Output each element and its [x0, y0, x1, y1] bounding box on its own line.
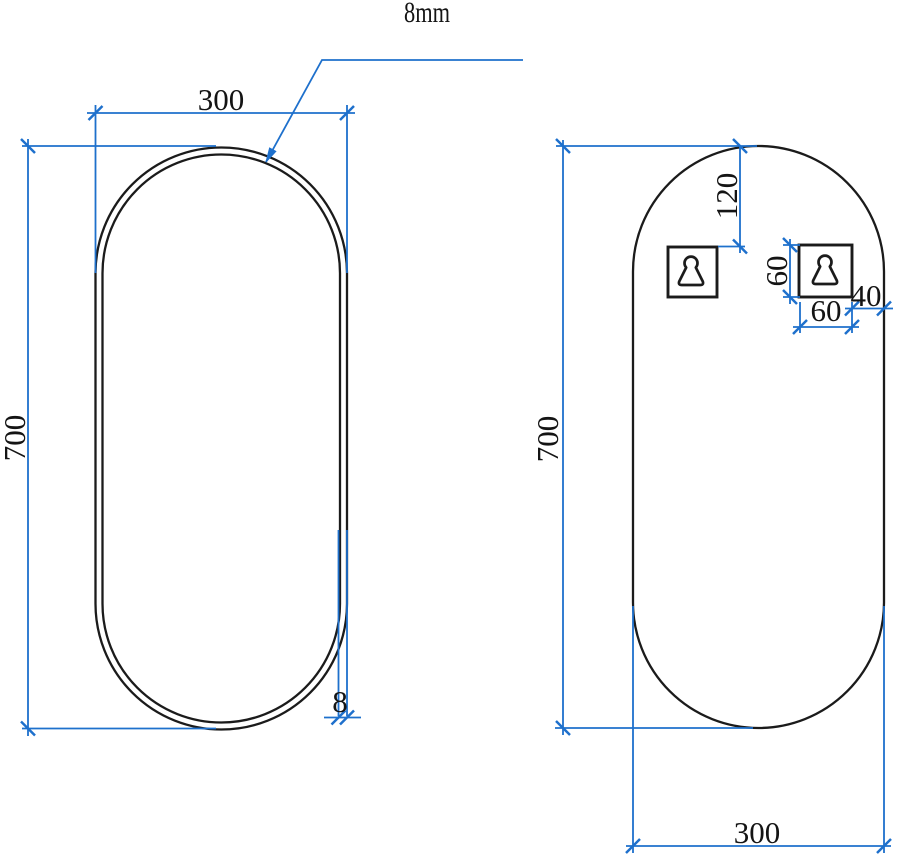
hanger-bracket-right — [799, 245, 852, 297]
front-mirror-inner-outline — [103, 155, 341, 723]
hanger-width-label: 60 — [811, 293, 842, 328]
front-width-label: 300 — [198, 82, 245, 117]
front-view-labels: 300 700 8 8mm — [0, 0, 450, 719]
front-view: 300 700 8 8mm — [0, 0, 523, 736]
front-mirror-outer-outline — [96, 148, 348, 730]
front-frame-thickness-label: 8 — [332, 684, 348, 719]
glass-thickness-label: 8mm — [404, 0, 450, 29]
back-width-label: 300 — [734, 815, 781, 850]
front-height-label: 700 — [0, 415, 32, 462]
back-view-outlines — [633, 146, 884, 728]
glass-thickness-leader-line — [266, 60, 523, 162]
back-view: 700 300 120 60 60 40 — [530, 139, 893, 853]
back-view-labels: 700 300 120 60 60 40 — [530, 173, 882, 850]
drawing-canvas: 300 700 8 8mm — [0, 0, 900, 864]
keyhole-hanger-icon — [813, 256, 837, 284]
keyhole-hanger-icon — [679, 257, 703, 285]
hanger-top-offset-label: 120 — [709, 173, 744, 220]
front-view-outlines — [96, 148, 348, 730]
mirror-technical-drawing: 300 700 8 8mm — [0, 0, 900, 864]
back-mirror-outline — [633, 146, 884, 728]
hanger-bracket-left — [668, 247, 717, 297]
hanger-side-offset-label: 40 — [851, 278, 882, 313]
back-height-label: 700 — [530, 416, 565, 463]
hanger-height-label: 60 — [759, 256, 794, 287]
